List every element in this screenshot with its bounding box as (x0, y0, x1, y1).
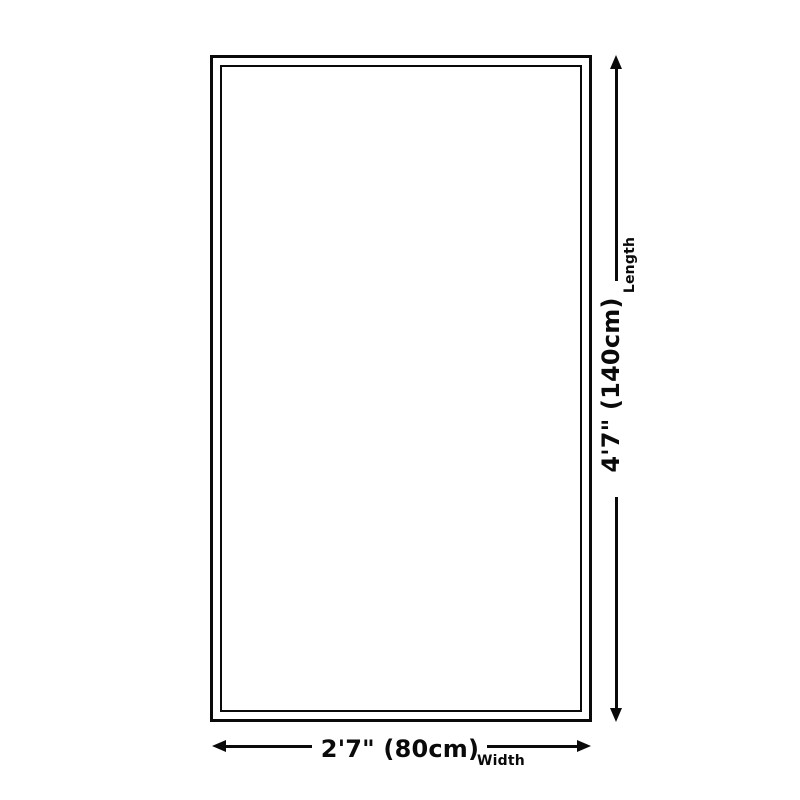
length-label: Length (622, 237, 638, 293)
arrow-right-icon (577, 740, 591, 752)
width-line-right (487, 745, 579, 748)
width-label: Width (477, 753, 525, 769)
width-line-left (224, 745, 312, 748)
length-line-bottom (615, 497, 618, 708)
dimension-diagram: Length 4'7" (140cm) 2'7" (80cm) Width (0, 0, 800, 800)
product-outline-outer (210, 55, 592, 722)
width-value: 2'7" (80cm) (321, 735, 479, 763)
length-line-top (615, 66, 618, 281)
length-value: 4'7" (140cm) (597, 297, 625, 472)
product-outline-inner (220, 65, 582, 712)
arrow-down-icon (610, 708, 622, 722)
